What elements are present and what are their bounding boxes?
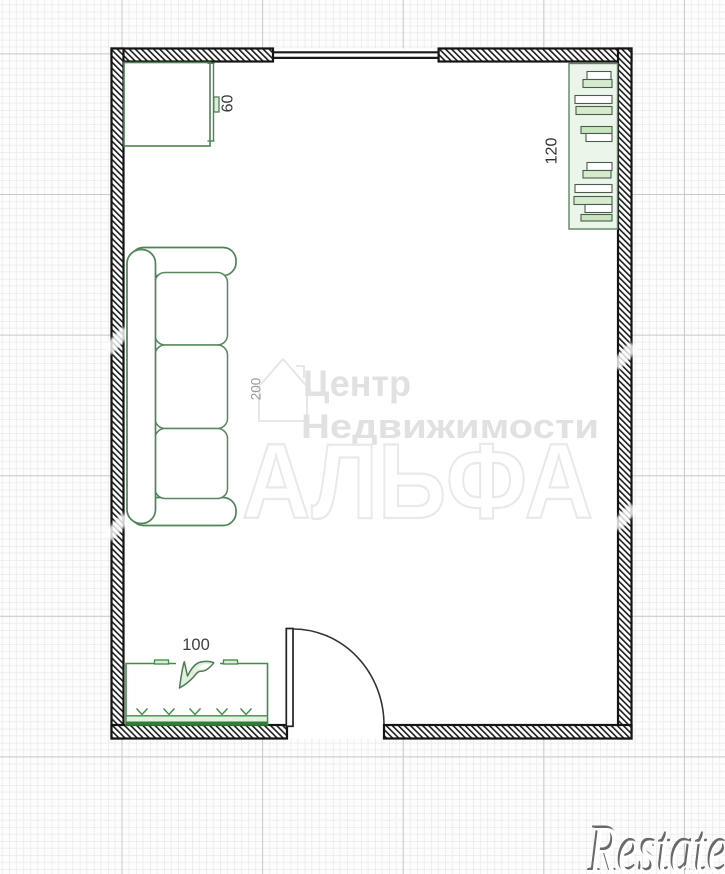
svg-text:Restate: Restate bbox=[588, 812, 725, 874]
svg-text:Центр: Центр bbox=[303, 363, 411, 404]
svg-text:200: 200 bbox=[249, 378, 264, 401]
svg-text:60: 60 bbox=[220, 95, 237, 113]
svg-text:120: 120 bbox=[544, 138, 561, 165]
svg-text:АЛЬФА: АЛЬФА bbox=[242, 421, 593, 541]
svg-text:100: 100 bbox=[182, 636, 210, 654]
